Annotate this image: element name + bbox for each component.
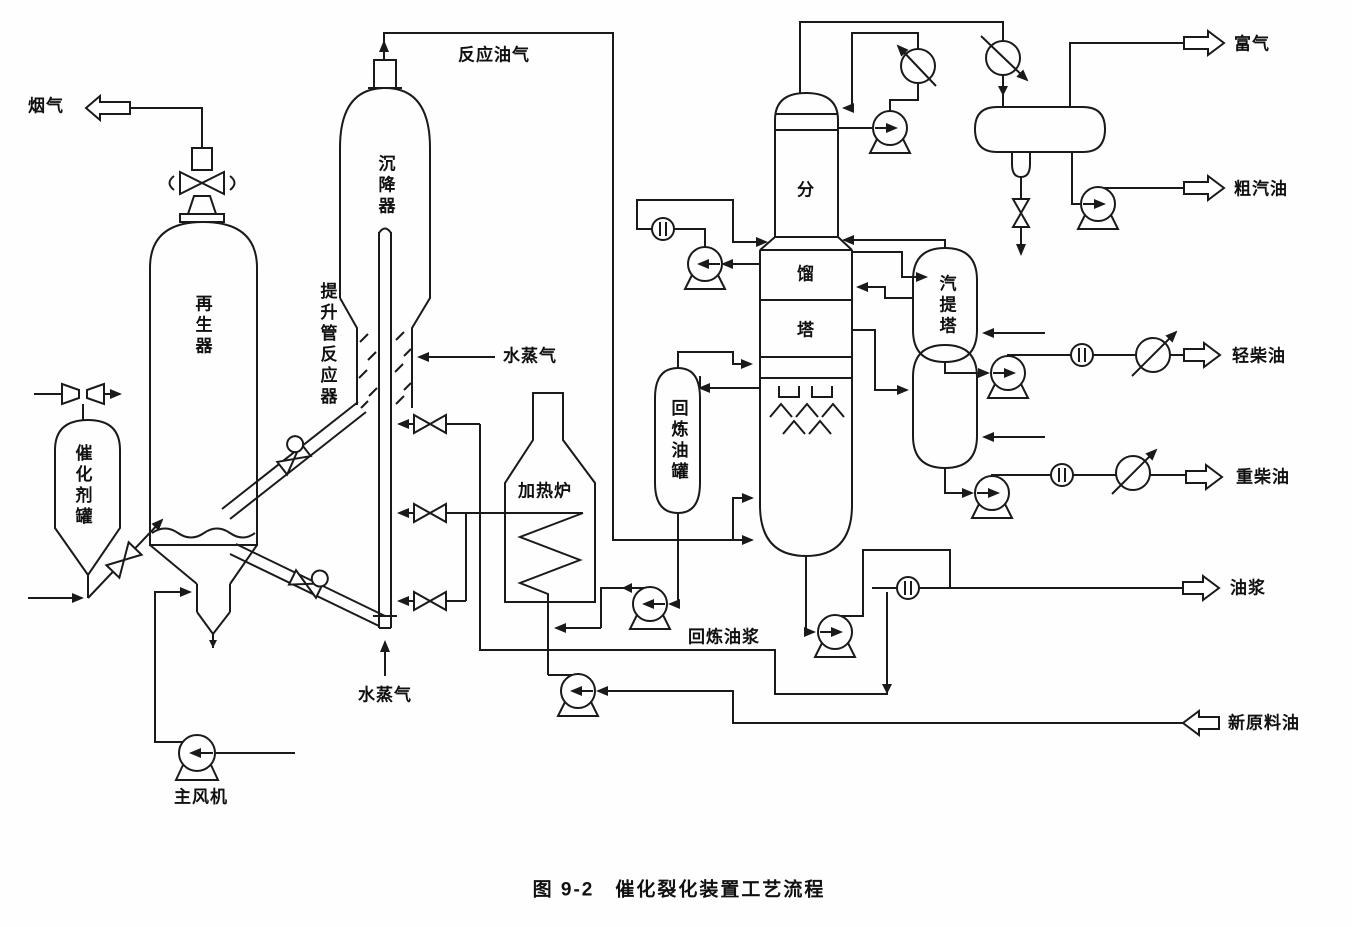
rich-gas-line — [1070, 31, 1224, 107]
main-blower — [176, 735, 218, 780]
riser-reactor-label: 提升管反应器 — [319, 282, 336, 408]
fractionator-label-1: 分 — [797, 182, 815, 199]
recycle-slurry-label: 回炼油浆 — [688, 629, 760, 646]
regenerator-label: 再生器 — [194, 295, 211, 358]
settler-vessel — [340, 60, 430, 408]
slurry-pump — [815, 615, 855, 657]
furnace-coil — [520, 513, 583, 602]
catalyst-tank-vessel — [28, 384, 162, 598]
crude-gasoline-arrow — [1184, 176, 1224, 200]
fresh-feed-line — [578, 673, 1219, 735]
fractionator-label-3: 塔 — [797, 322, 815, 339]
fresh-feed-label: 新原料油 — [1228, 715, 1300, 732]
tower-stripper-lines — [844, 240, 1045, 437]
crude-gasoline-pump — [1078, 187, 1118, 229]
riser-pipe — [373, 229, 397, 629]
tower-bottoms-line — [806, 556, 814, 632]
fractionator-label-2: 馏 — [797, 266, 815, 283]
main-blower-line — [155, 592, 295, 753]
oil-slurry-label: 油浆 — [1230, 580, 1266, 597]
spent-catalyst-line — [222, 402, 366, 519]
heavy-diesel-arrow — [1186, 465, 1222, 489]
pumparound-pump — [870, 111, 910, 153]
flue-gas-outlet-arrow — [86, 96, 130, 120]
main-blower-label: 主风机 — [174, 789, 228, 806]
light-diesel-arrow — [1184, 343, 1220, 367]
fresh-feed-pump — [558, 674, 598, 716]
bed-level-wave — [152, 529, 255, 538]
tank-vapor-line — [678, 352, 751, 368]
rich-gas-arrow — [1184, 31, 1224, 55]
reaction-oil-gas-label: 反应油气 — [458, 47, 530, 64]
settler-label: 沉降器 — [377, 155, 394, 218]
tower-internals — [770, 386, 844, 434]
slurry-circuit — [835, 550, 1219, 616]
fresh-feed-arrow — [1183, 711, 1219, 735]
settler-top-nozzle — [374, 60, 396, 88]
regenerated-catalyst-line — [230, 544, 385, 626]
catalyst-loading-ejector — [34, 384, 120, 420]
recycle-oil-tank-label: 回炼油罐 — [670, 399, 687, 483]
recycle-oil-pump — [630, 587, 670, 629]
drum-drain-valve — [1013, 199, 1029, 227]
mid-pumparound-pump — [685, 247, 725, 289]
light-diesel-pump — [988, 356, 1028, 398]
regenerator-vessel — [150, 222, 257, 648]
flow-orifice — [1071, 344, 1093, 366]
catalyst-tank-label: 催化剂罐 — [74, 444, 91, 528]
steam-lower-label: 水蒸气 — [358, 687, 412, 704]
tank-bottom-line — [670, 513, 678, 604]
flue-gas-line — [86, 96, 202, 148]
heating-furnace-label: 加热炉 — [518, 483, 572, 500]
light-diesel-line — [945, 332, 1220, 376]
rich-gas-label: 富气 — [1234, 36, 1270, 53]
stripping-section-stipple — [359, 332, 411, 408]
heating-furnace — [505, 393, 601, 675]
heavy-diesel-label: 重柴油 — [1236, 469, 1290, 486]
process-flow-diagram: 烟气 反应油气 沉降器 提升管反应器 再生器 催化剂罐 水蒸气 水蒸气 主风机 … — [0, 0, 1352, 927]
figure-caption: 图 9-2 催化裂化装置工艺流程 — [533, 875, 826, 902]
flue-gas-valve — [170, 148, 235, 222]
heavy-diesel-pump — [972, 476, 1012, 518]
oil-slurry-arrow — [1183, 576, 1219, 600]
light-diesel-label: 轻柴油 — [1232, 348, 1286, 365]
overhead-drum — [975, 107, 1105, 254]
flow-orifice — [1051, 464, 1073, 486]
flue-gas-label: 烟气 — [28, 98, 64, 115]
stripper-label: 汽提塔 — [938, 275, 955, 338]
flow-orifice — [652, 218, 674, 240]
flow-orifice — [897, 577, 919, 599]
steam-upper-label: 水蒸气 — [503, 348, 557, 365]
fractionator-vessel — [760, 93, 852, 632]
crude-gasoline-label: 粗汽油 — [1234, 181, 1288, 198]
